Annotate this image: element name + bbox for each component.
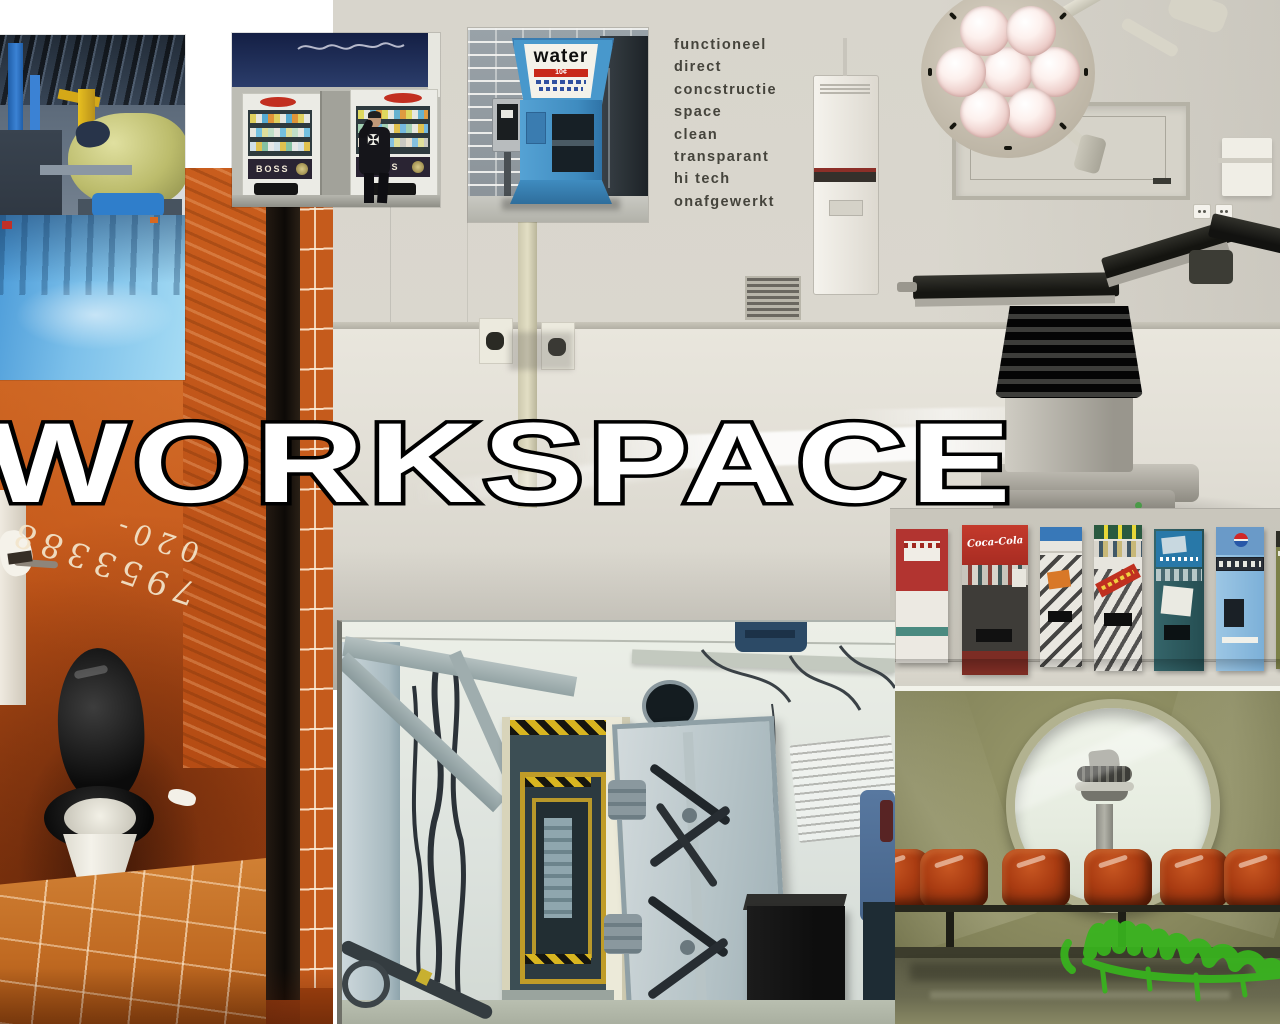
lamp-bulb-5 [960, 6, 1010, 56]
lamp-rim-notch [928, 68, 932, 76]
bathroom-bottom-shade [0, 968, 333, 1024]
cocacola-slot [976, 629, 1012, 642]
person-leg-right [377, 173, 389, 204]
pepsi-bottom-stripe [1222, 637, 1258, 643]
newsprint-slot [1048, 611, 1072, 622]
ac-label [829, 200, 863, 216]
floor-glare [15, 280, 175, 350]
baseboard [333, 322, 1280, 329]
ac-dark-band [814, 172, 876, 182]
shadow-machine-hint [608, 68, 610, 188]
machine-pepsi [1216, 527, 1264, 671]
cocacola-sticker [1012, 569, 1026, 587]
ac-top-vents [820, 84, 870, 94]
pepsi-logo [1234, 533, 1248, 547]
lamp-bulb-6 [1006, 6, 1056, 56]
water-machine-coinpanel [526, 112, 546, 144]
wall-dispenser-lip [1218, 158, 1272, 163]
machine-teal [1154, 529, 1204, 671]
machine-newsprint-1 [1040, 527, 1082, 667]
water-machine-shelf [552, 140, 594, 146]
keyword-item: onafgewerkt [674, 191, 814, 213]
outlet-pin [1225, 210, 1228, 213]
green-graffiti-tag [890, 691, 1280, 1024]
power-outlet-1 [1193, 204, 1211, 219]
photo-water-vending-machine: water 10¢ [468, 28, 648, 222]
water-sign-label: water [524, 46, 598, 68]
lamp-rim-notch [1084, 68, 1088, 76]
person-leg-left [364, 173, 374, 203]
ac-pipe [843, 38, 847, 76]
outlet-pin [1203, 210, 1206, 213]
water-price-stripe: 10¢ [534, 69, 588, 77]
photo-boss-vending-machines: BOSS BOSS ✠ [232, 33, 440, 207]
keyword-item: concstructie [674, 79, 814, 101]
toilet-bowl-interior [64, 798, 136, 838]
black-corner-strip [266, 168, 300, 1000]
product-row [250, 128, 310, 137]
teal-top-sign [1156, 531, 1202, 567]
photo-airport-waiting-area [890, 686, 1280, 1024]
boss-emblem [412, 161, 424, 173]
bunker-floor [342, 1000, 895, 1024]
door-between-machines [320, 91, 354, 199]
hazard-stripe-inner-bottom [525, 954, 591, 964]
keyword-list: functioneel direct concstructie space cl… [674, 34, 814, 213]
teal-sign-text-dots [1160, 557, 1198, 561]
pepsi-product-dots [1219, 561, 1261, 567]
workspace-title-text: WORKSPACE [0, 406, 1016, 526]
panel-corner-marks [1153, 178, 1171, 184]
hinge-stack-lower [604, 914, 642, 954]
left-machine-logo [260, 97, 296, 107]
product-row [250, 142, 310, 151]
newsprint2-top-sign [1094, 525, 1142, 539]
machine-red-teal-band [896, 627, 948, 636]
person-hair [368, 111, 381, 118]
machines-floor-shadow [890, 659, 1280, 673]
valve-wheel [342, 960, 390, 1008]
outlet-pin [1220, 210, 1223, 213]
keyword-item: clean [674, 124, 814, 146]
cocacola-script-label: Coca-Cola [967, 535, 1024, 551]
lamp-rim-notch [1004, 146, 1012, 150]
water-sign-face: water 10¢ [524, 44, 598, 98]
teal-product-band [1156, 569, 1202, 581]
olive-top-band [1276, 531, 1280, 547]
ac-cabinet [813, 75, 879, 295]
keyword-item: transparant [674, 146, 814, 168]
newsprint2-slot [1104, 613, 1132, 626]
newsprint-top-sign [1040, 527, 1082, 541]
sign-scribble [292, 37, 412, 57]
hazard-stripe-inner-top [525, 777, 591, 787]
photo-japanese-vending-row: Coca-Cola [890, 508, 1280, 687]
cocacola-top-panel: Coca-Cola [962, 525, 1028, 565]
blue-tarp [92, 193, 164, 217]
left-boss-band: BOSS [248, 159, 312, 179]
table-end-clamp [897, 282, 917, 292]
vent-grille [745, 276, 801, 320]
water-machine-base [510, 180, 612, 204]
teal-white-sticker [1161, 586, 1194, 617]
boss-brand-label: BOSS [256, 159, 290, 179]
payphone-card [501, 110, 513, 118]
photo-vault-bunker [337, 620, 895, 1024]
water-sign-small-text [536, 80, 586, 84]
lamp-bulb-2 [1006, 88, 1056, 138]
vault-boss-upper [682, 808, 697, 823]
building-corner [428, 33, 440, 97]
machine-newsprint-2 [1094, 525, 1142, 671]
hazard-stripe-header [510, 720, 606, 735]
newsprint2-product-band [1094, 541, 1142, 557]
pepsi-coin-panel [1224, 599, 1244, 627]
product-row [250, 114, 310, 123]
table-bellows [995, 306, 1143, 398]
red-floor-item [2, 221, 12, 229]
door-reflection [509, 332, 573, 370]
machine-red-ticks [904, 543, 940, 548]
wall-dispenser [1222, 138, 1272, 196]
left-dispense-slot [254, 183, 298, 195]
orange-floor-item [150, 217, 158, 223]
teal-sign-image [1161, 536, 1187, 554]
pavement [232, 195, 440, 207]
work-platform [40, 165, 132, 175]
keyword-item: functioneel [674, 34, 814, 56]
teal-slot [1164, 625, 1190, 640]
machine-olive [1276, 531, 1280, 669]
keyword-item: hi tech [674, 168, 814, 190]
wall-fixture-left-knob [486, 332, 504, 350]
vault-boss-lower [680, 940, 695, 955]
workspace-title: WORKSPACE [0, 406, 1048, 526]
photo-aircraft-factory [0, 35, 185, 380]
workspace-collage-poster: 7953388 020- [0, 0, 1280, 1024]
tiled-wall [300, 168, 333, 991]
boss-emblem [296, 163, 308, 175]
right-machine-logo [384, 93, 422, 103]
newsprint-top-sign-lower [1040, 541, 1082, 553]
hinge-stack-upper [608, 780, 646, 820]
deepest-chamber [544, 818, 572, 918]
outlet-pin [1198, 210, 1201, 213]
dark-red-detail [880, 800, 893, 842]
keyword-item: space [674, 101, 814, 123]
water-sign-small-text-2 [539, 87, 583, 91]
keyword-item: direct [674, 56, 814, 78]
table-hinge-mechanism [1189, 250, 1233, 284]
orange-sticker [1047, 570, 1071, 590]
maltese-cross-logo: ✠ [367, 133, 380, 148]
